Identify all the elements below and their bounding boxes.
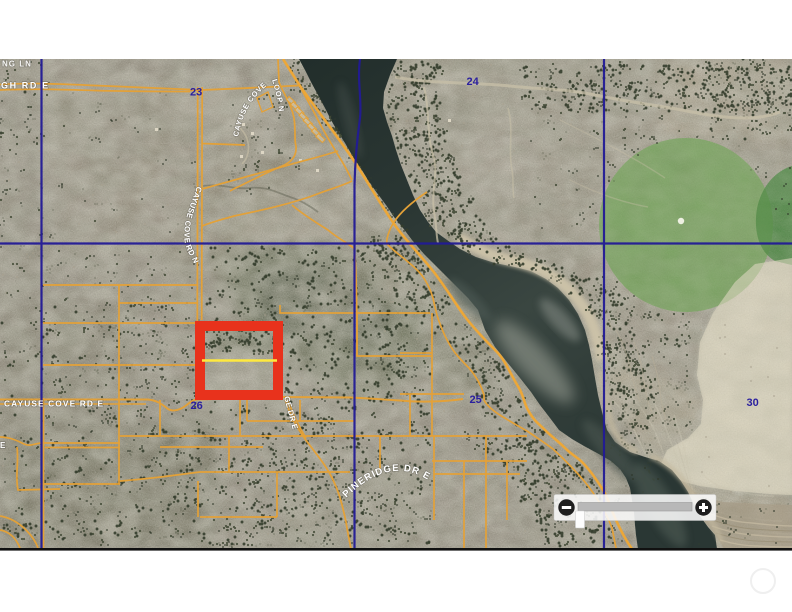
svg-text:CAYUSE COVE RD E: CAYUSE COVE RD E — [4, 399, 104, 409]
svg-text:26: 26 — [191, 400, 203, 412]
svg-text:E: E — [0, 441, 6, 450]
svg-text:23: 23 — [190, 87, 202, 99]
svg-text:30: 30 — [747, 397, 759, 409]
svg-text:25: 25 — [470, 394, 482, 406]
svg-text:GH RD E: GH RD E — [1, 81, 50, 91]
svg-text:24: 24 — [467, 76, 480, 88]
svg-text:NG LN: NG LN — [2, 60, 32, 69]
